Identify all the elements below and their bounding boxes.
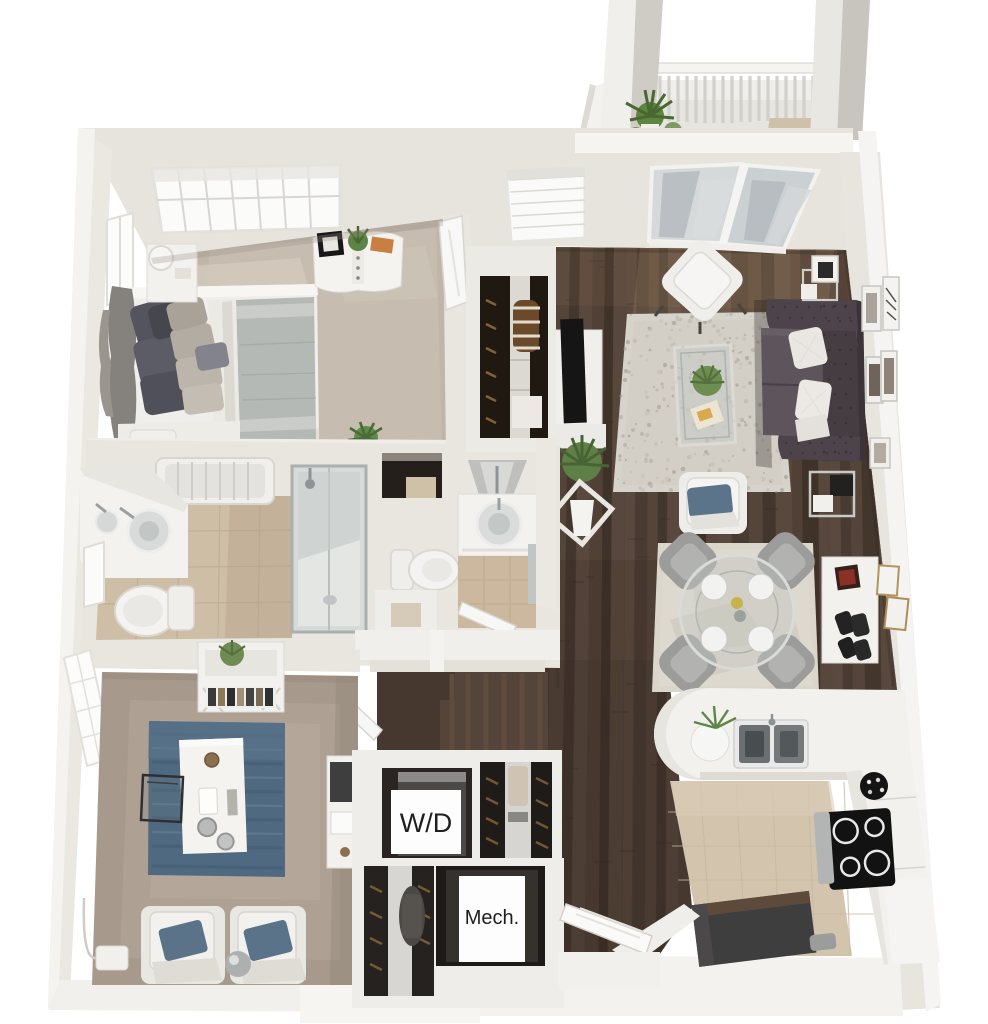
svg-text:Mech.: Mech.	[465, 907, 519, 929]
svg-text:W/D: W/D	[400, 808, 452, 838]
